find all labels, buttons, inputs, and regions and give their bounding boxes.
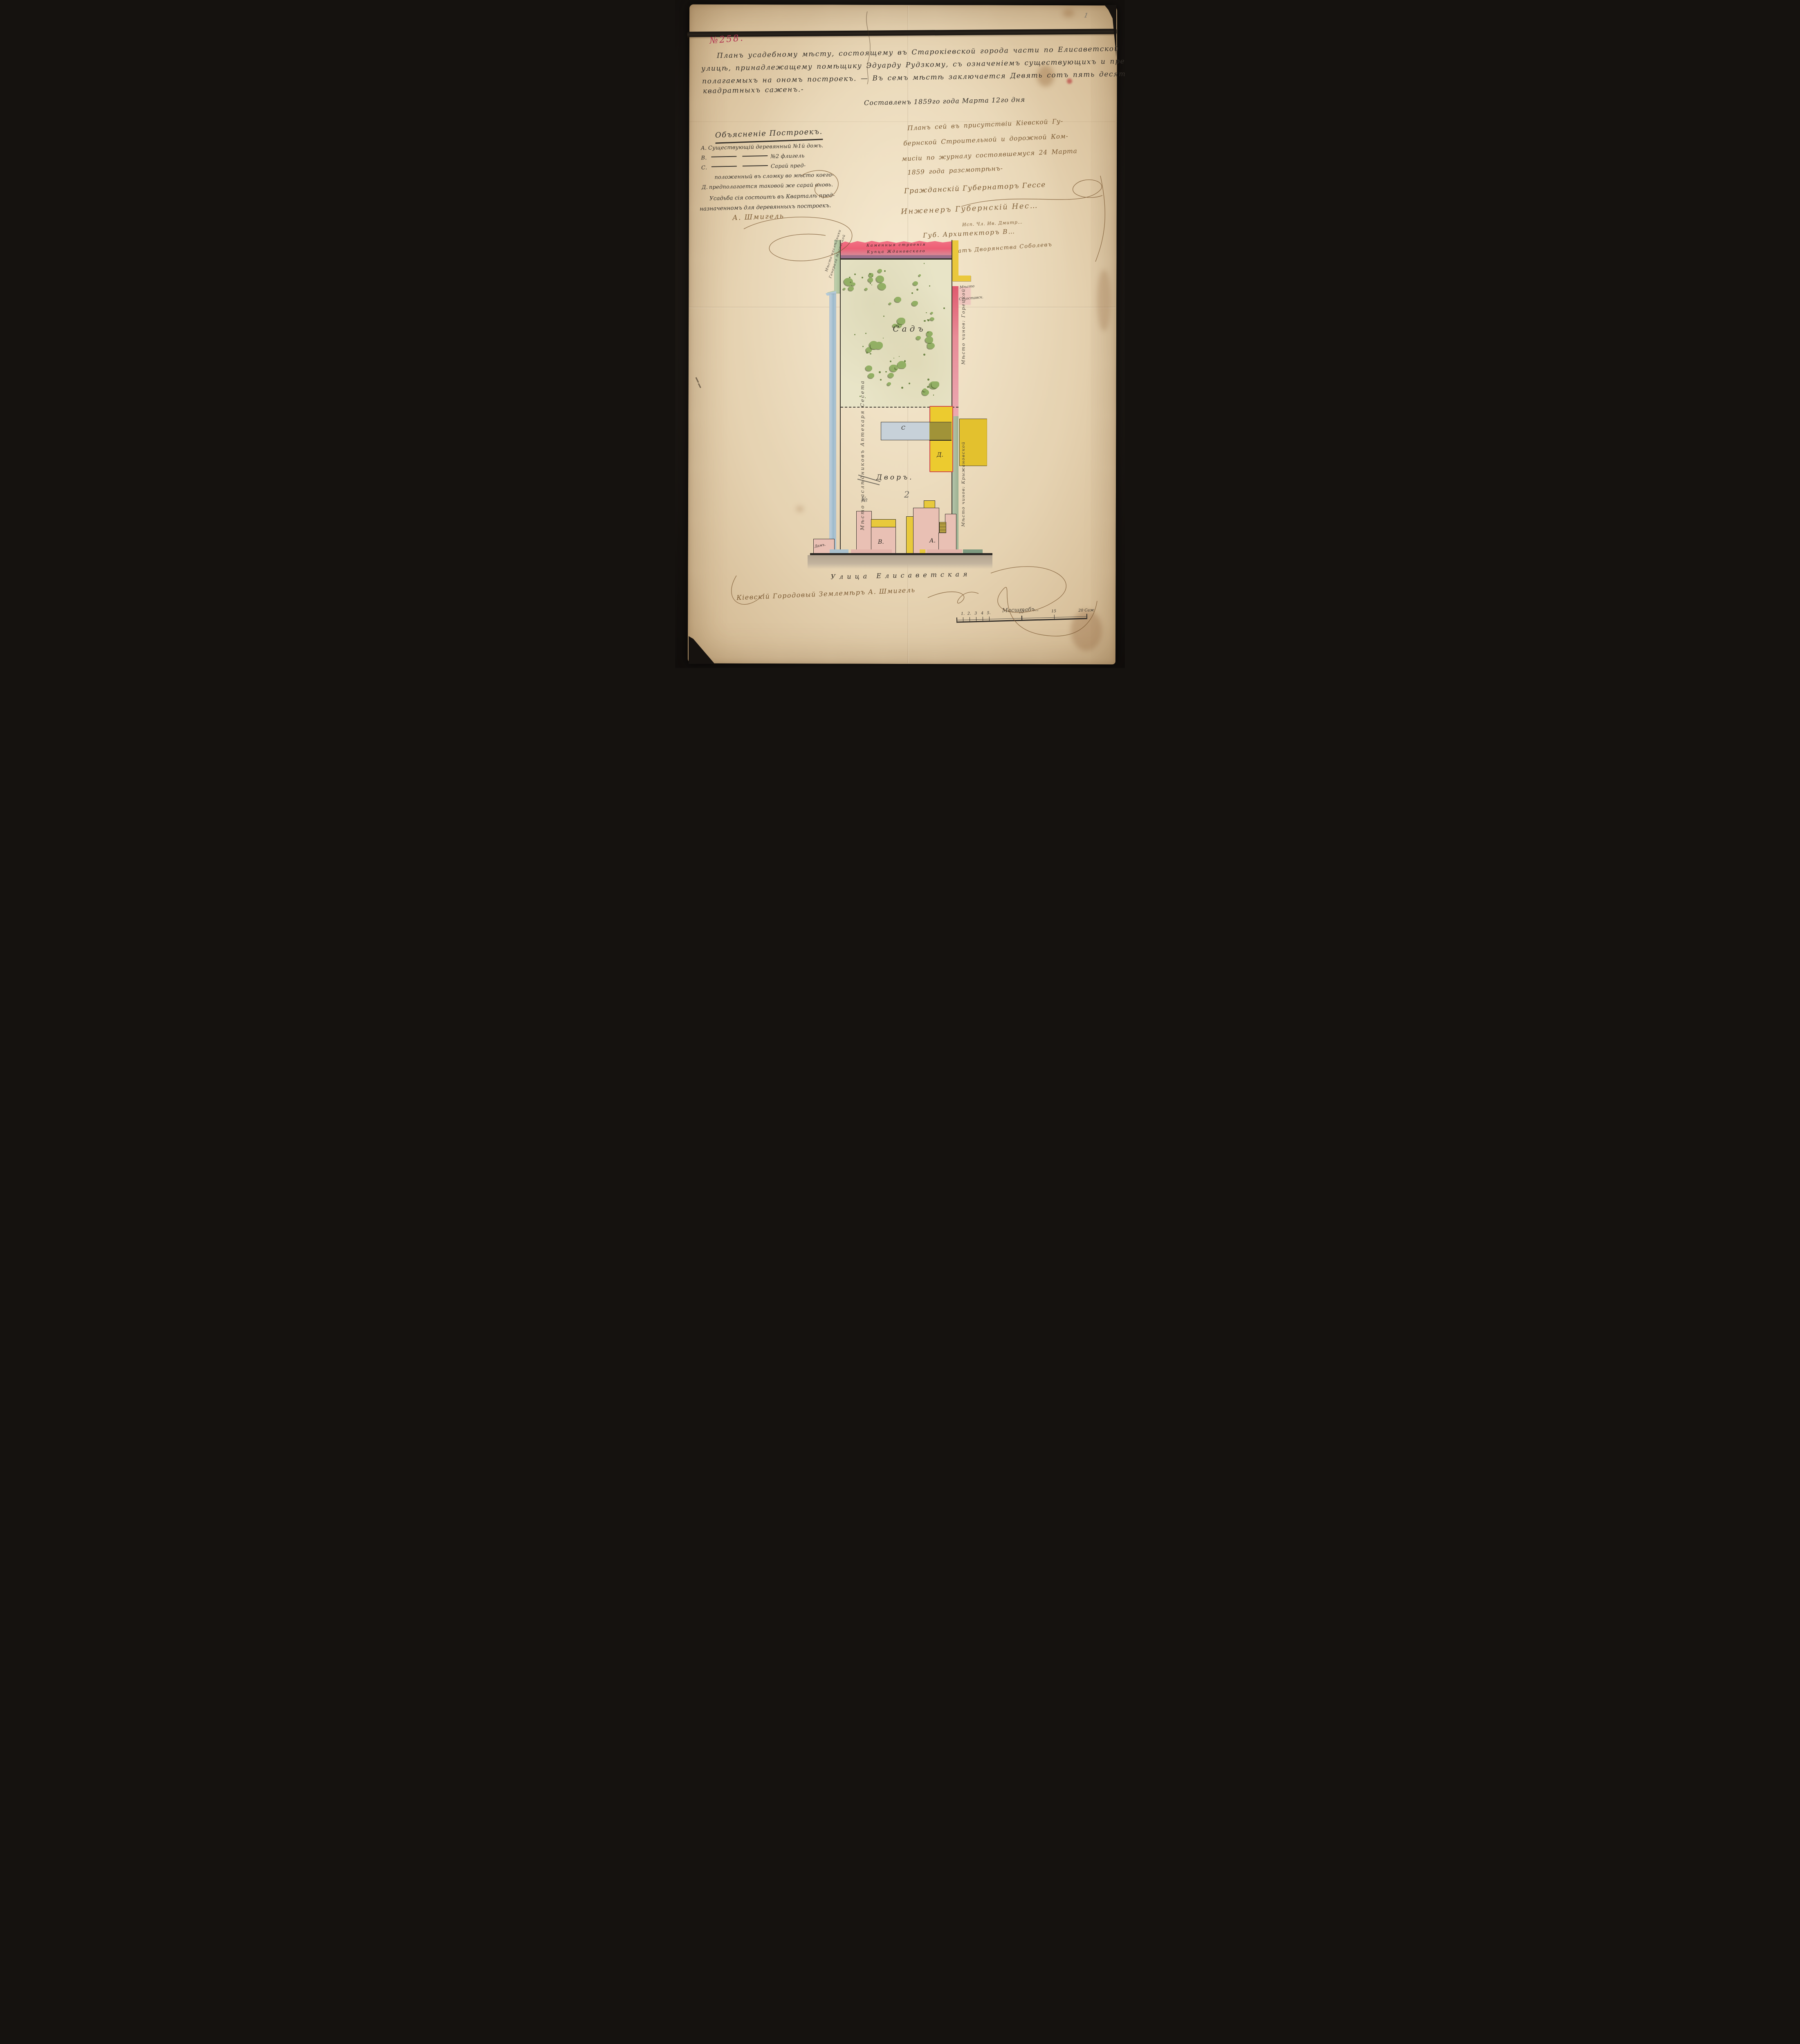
legend-item-text: Сарай пред- bbox=[771, 163, 806, 170]
scale-tick bbox=[956, 617, 957, 623]
building-a-hatched-part bbox=[939, 522, 946, 533]
scale-tick-label: 10 bbox=[1019, 610, 1023, 614]
scale-tick-label: 15 bbox=[1051, 609, 1056, 614]
legend-item-letter: С. bbox=[701, 165, 709, 171]
scale-tick bbox=[1054, 615, 1055, 620]
legend-item: Д.предполагается таковой же сарай вновь. bbox=[702, 182, 834, 191]
left-border-blue-strip bbox=[829, 294, 836, 555]
garden-tree-dot bbox=[865, 333, 866, 334]
garden-tree-dot bbox=[916, 289, 918, 291]
garden-tree-dot bbox=[866, 352, 868, 354]
garden-tree-dot bbox=[890, 361, 891, 362]
neighbor-right-lower-label: Мѣсто чинов: Крыжановской bbox=[961, 419, 966, 549]
building-a-left-tower bbox=[913, 508, 939, 554]
garden-tree bbox=[919, 274, 921, 276]
garden-tree-dot bbox=[885, 371, 887, 372]
building-b-label: В. bbox=[878, 539, 884, 545]
garden-tree-dot bbox=[869, 273, 871, 275]
scale-tick bbox=[982, 617, 983, 622]
garden-tree bbox=[925, 336, 933, 343]
legend-item-text: №2 флигель bbox=[770, 153, 804, 160]
legend-item: В.№2 флигель bbox=[701, 152, 833, 161]
garden-tree-dot bbox=[872, 276, 873, 277]
garden-tree-dot bbox=[870, 283, 871, 284]
garden-tree-dot bbox=[883, 338, 884, 338]
building-b-yellow-wing bbox=[871, 519, 896, 528]
scale-tick bbox=[1086, 614, 1087, 619]
garden-tree bbox=[930, 317, 934, 320]
garden-tree-dot bbox=[904, 360, 906, 362]
facade-pink bbox=[851, 549, 892, 553]
garden-tree bbox=[898, 361, 906, 368]
legend-item: положенный въ сломку во мѣсто коего- bbox=[707, 172, 834, 181]
legend-items: А.Существующій деревянный №1й домъ.В.№2 … bbox=[701, 143, 834, 195]
garden-tree bbox=[931, 312, 933, 314]
right-border-yellow-strip bbox=[952, 240, 958, 281]
scale-tick-label: 1. bbox=[961, 612, 965, 616]
street-band bbox=[808, 555, 992, 569]
right-border-red-strip bbox=[952, 286, 958, 416]
garden-tree bbox=[878, 269, 882, 273]
garden-tree-dot bbox=[884, 270, 886, 272]
scale-tick-label: 3 bbox=[974, 611, 977, 616]
garden-tree-dot bbox=[911, 292, 913, 294]
legend-item-text: положенный въ сломку во мѣсто коего- bbox=[714, 172, 834, 181]
garden-tree bbox=[931, 381, 939, 388]
garden-tree bbox=[913, 281, 918, 285]
garden-tree-dot bbox=[909, 383, 910, 384]
garden-tree-dot bbox=[899, 356, 900, 357]
garden-tree-dot bbox=[880, 379, 882, 381]
garden-tree-dot bbox=[901, 387, 903, 389]
garden-tree bbox=[888, 373, 894, 378]
garden-tree-dot bbox=[879, 371, 881, 373]
garden-tree bbox=[848, 286, 853, 291]
garden-tree bbox=[878, 283, 886, 290]
garden-tree-dot bbox=[871, 285, 872, 285]
garden-tree-dot bbox=[854, 334, 855, 335]
garden-tree-dot bbox=[870, 353, 871, 354]
scale-tick-label: 4 bbox=[981, 611, 983, 616]
garden-tree bbox=[916, 336, 921, 340]
garden-tree bbox=[868, 373, 874, 379]
garden-label: Садъ bbox=[879, 324, 940, 334]
ditto-dash bbox=[743, 165, 768, 167]
garden-tree bbox=[923, 388, 927, 392]
garden-tree bbox=[889, 303, 891, 305]
ditto-dash bbox=[711, 166, 737, 168]
facade-pink bbox=[927, 549, 962, 553]
garden-tree-dot bbox=[933, 394, 934, 395]
ditto-dash bbox=[742, 155, 768, 157]
neighbor-left-label: Мѣсто наслѣдниковъ Аптекаря Сесета bbox=[860, 328, 865, 582]
garden-tree bbox=[897, 318, 905, 325]
garden-tree-dot bbox=[927, 386, 929, 388]
legend-item-letter: В. bbox=[701, 155, 708, 161]
facade-blue bbox=[830, 549, 848, 553]
scale-tick-label: 2. bbox=[967, 611, 971, 616]
building-a-right-tower bbox=[945, 514, 956, 554]
scale-tick bbox=[963, 617, 964, 623]
legend-item: С.Сарай пред- bbox=[701, 162, 834, 171]
building-c-old-shed bbox=[881, 422, 931, 440]
garden-tree bbox=[876, 276, 884, 282]
garden-tree bbox=[844, 278, 853, 286]
garden-tree-dot bbox=[943, 307, 945, 309]
ditto-dash bbox=[711, 156, 736, 158]
facade-yellow bbox=[920, 549, 925, 553]
scale-tick bbox=[989, 616, 990, 622]
photographed-document: №258. 1 Планъ усадебному мѣсту, состояще… bbox=[675, 0, 1125, 668]
facade-green bbox=[963, 549, 983, 553]
garden-tree-dot bbox=[849, 277, 850, 278]
garden-tree bbox=[895, 297, 901, 303]
garden-tree bbox=[871, 343, 878, 349]
legend-item-letter: А. bbox=[701, 145, 708, 151]
garden-tree bbox=[927, 343, 935, 349]
courtyard-pencil-number: 2 bbox=[904, 490, 909, 500]
garden-tree-dot bbox=[893, 358, 894, 359]
scale-tick bbox=[970, 617, 970, 623]
building-cd-overlap bbox=[929, 422, 952, 441]
garden-tree bbox=[866, 365, 872, 371]
garden-tree-dot bbox=[923, 354, 925, 356]
garden-tree-dot bbox=[924, 263, 925, 264]
garden-tree-dot bbox=[927, 379, 929, 381]
garden-tree bbox=[912, 301, 918, 306]
neighbor-right-upper-label: Мѣсто чинов: Горецкой bbox=[961, 259, 966, 394]
scale-tick bbox=[1021, 616, 1022, 621]
garden-tree-dot bbox=[926, 312, 927, 314]
building-a-label: А. bbox=[929, 538, 936, 544]
legend-item-text: предполагается таковой же сарай вновь. bbox=[709, 182, 833, 191]
garden-tree-dot bbox=[883, 316, 884, 317]
street-facade-row bbox=[675, 549, 1125, 553]
garden-area bbox=[841, 260, 952, 408]
garden-tree bbox=[895, 366, 898, 369]
legend-item-letter: Д. bbox=[702, 184, 709, 191]
garden-tree bbox=[865, 288, 868, 290]
garden-tree-dot bbox=[854, 273, 856, 276]
scale-tick-label: 5. bbox=[987, 611, 990, 615]
garden-tree-dot bbox=[851, 285, 852, 286]
garden-tree bbox=[887, 382, 891, 385]
garden-tree-dot bbox=[924, 320, 925, 322]
garden-tree-dot bbox=[862, 277, 863, 278]
building-c-label: С bbox=[901, 425, 905, 431]
scale-tick bbox=[976, 617, 977, 622]
scale-tick-label: 20 Саж bbox=[1078, 608, 1094, 613]
garden-tree bbox=[843, 288, 846, 290]
garden-tree-dot bbox=[850, 282, 851, 283]
courtyard-label: Дворъ. bbox=[876, 473, 914, 482]
building-d-label: Д. bbox=[937, 452, 943, 458]
garden-tree bbox=[868, 278, 873, 282]
garden-tree-dot bbox=[929, 285, 930, 287]
